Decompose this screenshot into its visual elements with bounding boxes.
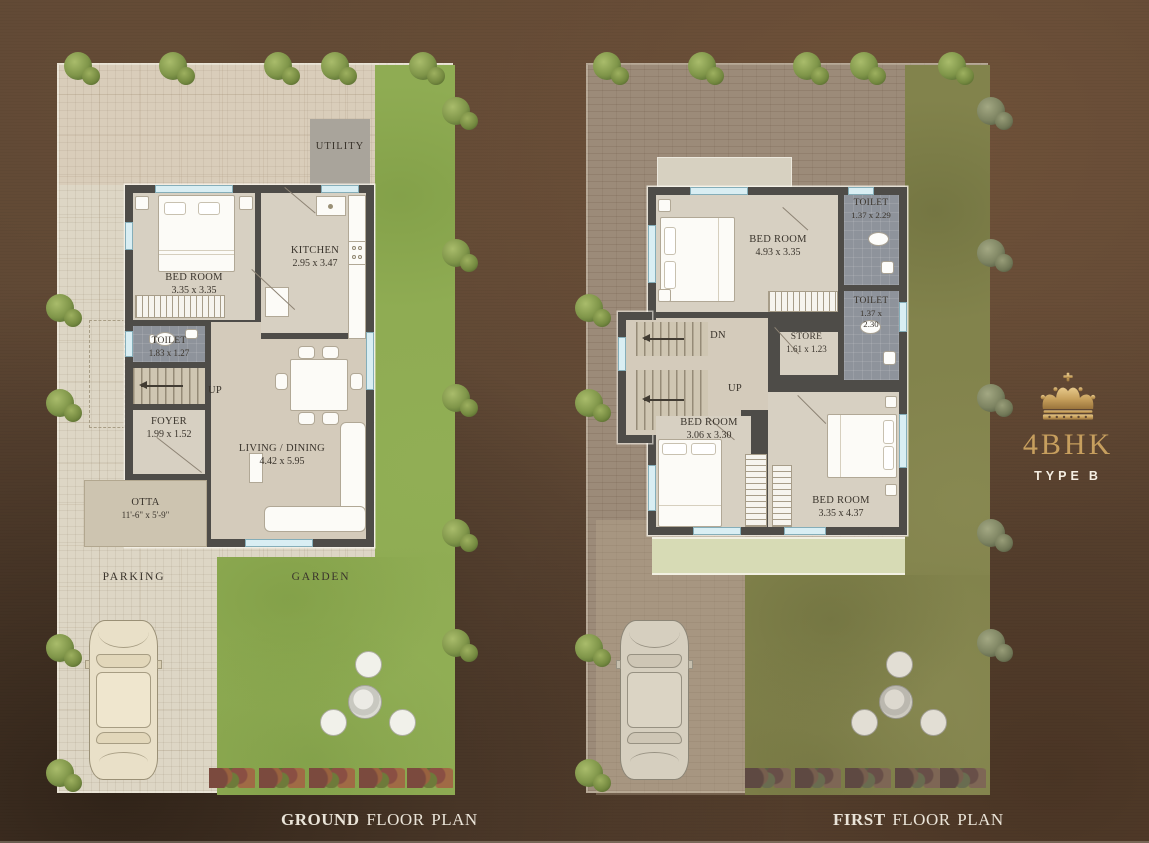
balcony xyxy=(652,537,905,575)
car-icon xyxy=(87,620,160,780)
tree-icon xyxy=(977,97,1005,125)
living-dining-label: LIVING / DINING 4.42 x 5.95 xyxy=(222,443,342,468)
brand-logo: 4BHK TYPEB xyxy=(1010,372,1126,483)
nightstand-icon xyxy=(658,199,671,212)
garden-chair-icon xyxy=(886,651,913,678)
blanket-fold xyxy=(159,254,234,255)
bush-icon xyxy=(940,768,986,788)
brand-title: 4BHK xyxy=(1010,428,1126,462)
nightstand-icon xyxy=(658,289,671,302)
parking-label: PARKING xyxy=(84,571,184,583)
bush-icon xyxy=(795,768,841,788)
garden-area xyxy=(745,575,990,795)
window xyxy=(899,414,907,468)
bush-icon xyxy=(209,768,255,788)
utility-label: UTILITY xyxy=(310,141,370,153)
tree-icon xyxy=(850,52,878,80)
sink-icon xyxy=(316,196,346,216)
garden-chair-icon xyxy=(851,709,878,736)
washbasin-icon xyxy=(883,351,896,365)
window xyxy=(648,225,656,283)
tree-icon xyxy=(442,97,470,125)
otta-label: OTTA 11'-6" x 5'-9" xyxy=(84,497,207,520)
balcony-door xyxy=(693,527,741,535)
window xyxy=(618,337,626,371)
tree-icon xyxy=(575,759,603,787)
bush-icon xyxy=(895,768,941,788)
tree-icon xyxy=(977,239,1005,267)
garden-chair-icon xyxy=(920,709,947,736)
store-label: STORE 1.61 x 1.23 xyxy=(775,332,838,354)
bedroom-label: BED ROOM 3.35 x 3.35 xyxy=(134,272,254,297)
toilet-label: TOILET 1.83 x 1.27 xyxy=(133,336,205,358)
window xyxy=(125,331,133,357)
sofa-icon xyxy=(264,506,366,532)
chair-icon xyxy=(322,412,339,425)
stair-arrow-icon xyxy=(644,338,684,340)
washbasin-icon xyxy=(881,261,894,274)
tree-icon xyxy=(46,634,74,662)
tree-icon xyxy=(442,629,470,657)
bedroom2-label: BED ROOM 3.06 x 3.30 xyxy=(649,417,769,442)
chair-icon xyxy=(275,373,288,390)
floor-plan-sheet: UTILITY xyxy=(0,0,1149,843)
chair-icon xyxy=(298,412,315,425)
kitchen-label: KITCHEN 2.95 x 3.47 xyxy=(255,245,375,270)
bush-icon xyxy=(407,768,453,788)
ground-floor-caption: GROUND FLOOR PLAN xyxy=(281,810,478,830)
toilet1-label: TOILET 1.37 x 2.29 xyxy=(840,198,902,220)
chair-icon xyxy=(298,346,315,359)
tree-icon xyxy=(977,384,1005,412)
tree-icon xyxy=(159,52,187,80)
nightstand-icon xyxy=(239,196,253,210)
window xyxy=(125,222,133,250)
chair-icon xyxy=(350,373,363,390)
wardrobe-icon xyxy=(745,454,767,527)
stairs-up-label: UP xyxy=(719,383,751,395)
wc-icon xyxy=(868,232,889,246)
window xyxy=(648,465,656,511)
garden-chair-icon xyxy=(355,651,382,678)
garden-chair-icon xyxy=(320,709,347,736)
stairs-up-label: UP xyxy=(199,385,231,397)
pillow-icon xyxy=(691,443,716,455)
toilet2-label: TOILET 1.37 x 2.30 xyxy=(840,296,902,329)
wardrobe-icon xyxy=(768,291,838,312)
pillow-icon xyxy=(198,202,220,215)
ground-floor-plot: UTILITY xyxy=(57,63,453,793)
pillow-icon xyxy=(664,227,676,255)
tree-icon xyxy=(46,759,74,787)
crown-icon xyxy=(1035,372,1101,421)
stairs-dn-label: DN xyxy=(702,330,734,342)
stair-arrow-icon xyxy=(644,399,684,401)
bedroom3-label: BED ROOM 3.35 x 4.37 xyxy=(781,495,901,520)
garden-table-icon xyxy=(879,685,913,719)
car-icon xyxy=(618,620,691,780)
tree-icon xyxy=(575,294,603,322)
tree-icon xyxy=(46,294,74,322)
tree-icon xyxy=(264,52,292,80)
dining-table-icon xyxy=(290,359,348,411)
foyer-label: FOYER 1.99 x 1.52 xyxy=(133,416,205,441)
blanket-fold xyxy=(659,505,721,506)
nightstand-icon xyxy=(885,396,897,408)
pillow-icon xyxy=(664,261,676,289)
tree-icon xyxy=(575,634,603,662)
tree-icon xyxy=(575,389,603,417)
tree-icon xyxy=(593,52,621,80)
tree-icon xyxy=(688,52,716,80)
window xyxy=(155,185,233,193)
first-floor-plot: BED ROOM 4.93 x 3.35 TOILET 1.37 x 2.29 … xyxy=(586,63,988,793)
bush-icon xyxy=(309,768,355,788)
tree-icon xyxy=(442,519,470,547)
pillow-icon xyxy=(883,446,894,470)
sitout-dashed-outline xyxy=(89,320,125,428)
tree-icon xyxy=(793,52,821,80)
window xyxy=(245,539,313,547)
balcony-door xyxy=(784,527,826,535)
first-floor-caption: FIRST FLOOR PLAN xyxy=(833,810,1004,830)
brand-type: TYPEB xyxy=(1010,469,1126,483)
tree-icon xyxy=(977,629,1005,657)
bush-icon xyxy=(259,768,305,788)
roof-ledge xyxy=(657,157,792,187)
blanket-fold xyxy=(159,250,234,251)
tree-icon xyxy=(64,52,92,80)
window xyxy=(690,187,748,195)
tree-icon xyxy=(46,389,74,417)
garden-area xyxy=(217,557,455,795)
tree-icon xyxy=(977,519,1005,547)
tree-icon xyxy=(442,384,470,412)
chair-icon xyxy=(322,346,339,359)
bedroom1-label: BED ROOM 4.93 x 3.35 xyxy=(718,234,838,259)
tree-icon xyxy=(321,52,349,80)
bush-icon xyxy=(845,768,891,788)
window xyxy=(848,187,874,195)
window xyxy=(321,185,359,193)
pillow-icon xyxy=(662,443,687,455)
pillow-icon xyxy=(883,420,894,444)
stair-arrow-icon xyxy=(141,385,183,387)
window xyxy=(366,332,374,390)
tree-icon xyxy=(938,52,966,80)
nightstand-icon xyxy=(135,196,149,210)
pillow-icon xyxy=(164,202,186,215)
garden-table-icon xyxy=(348,685,382,719)
blanket-fold xyxy=(840,415,841,477)
bush-icon xyxy=(359,768,405,788)
garden-label: GARDEN xyxy=(271,571,371,583)
wardrobe-icon xyxy=(135,295,225,318)
tree-icon xyxy=(409,52,437,80)
tree-icon xyxy=(442,239,470,267)
bush-icon xyxy=(745,768,791,788)
blanket-fold xyxy=(718,218,719,301)
garden-chair-icon xyxy=(389,709,416,736)
